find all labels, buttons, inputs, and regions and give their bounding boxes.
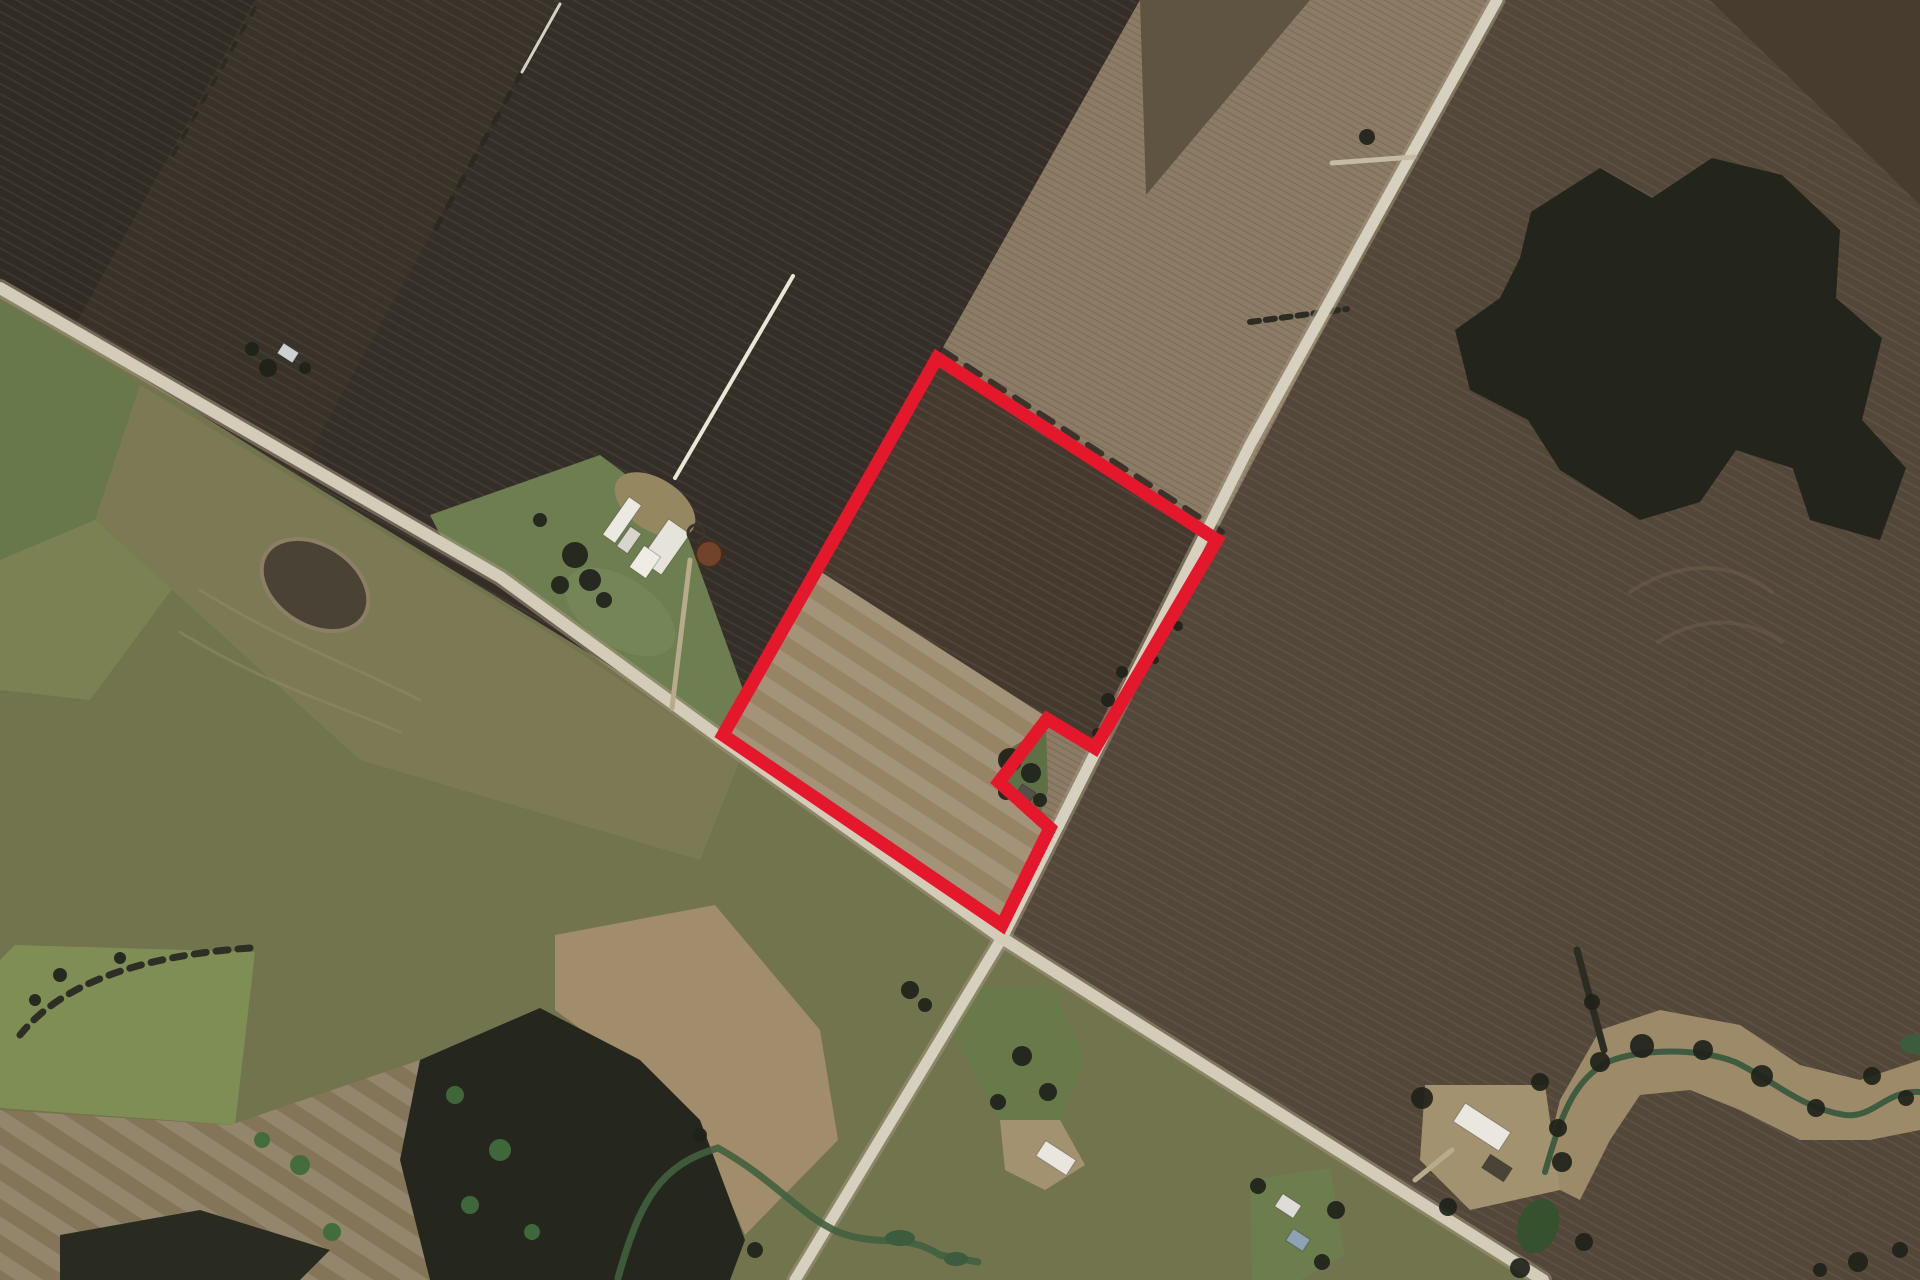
conifer-tree — [461, 1196, 479, 1214]
tree — [1575, 1233, 1593, 1251]
conifer-tree — [489, 1139, 511, 1161]
tree — [1807, 1099, 1825, 1117]
aerial-property-map — [0, 0, 1920, 1280]
tree — [579, 569, 601, 591]
tree — [1510, 1258, 1530, 1278]
tree — [1898, 1090, 1914, 1106]
conifer-tree — [323, 1223, 341, 1241]
tree — [533, 513, 547, 527]
tree — [693, 1128, 707, 1142]
tree — [1021, 763, 1041, 783]
tree — [1012, 1046, 1032, 1066]
tree — [596, 592, 612, 608]
tree — [551, 576, 569, 594]
tree — [114, 952, 126, 964]
tree — [1590, 1052, 1610, 1072]
tree — [747, 1242, 763, 1258]
tree — [990, 1094, 1006, 1110]
conifer-tree — [254, 1132, 270, 1148]
creek-pool-2 — [944, 1252, 968, 1266]
tree — [901, 981, 919, 999]
satellite-imagery — [0, 0, 1920, 1280]
conifer-tree — [524, 1224, 540, 1240]
tree — [1751, 1065, 1773, 1087]
conifer-tree — [446, 1086, 464, 1104]
tree — [1848, 1252, 1868, 1272]
tree — [1549, 1119, 1567, 1137]
tree — [1116, 666, 1128, 678]
tree — [53, 968, 67, 982]
tree — [1813, 1263, 1827, 1277]
tree — [1033, 793, 1047, 807]
tree — [1552, 1152, 1572, 1172]
pasture-bright — [0, 945, 255, 1125]
conifer-tree — [290, 1155, 310, 1175]
tree — [1039, 1083, 1057, 1101]
tree — [1584, 994, 1600, 1010]
tree — [1314, 1254, 1330, 1270]
tree — [1892, 1242, 1908, 1258]
tree — [299, 362, 311, 374]
tree — [1250, 1178, 1266, 1194]
tree — [1439, 1198, 1457, 1216]
tree — [259, 359, 277, 377]
tree — [918, 998, 932, 1012]
rust-silo — [696, 541, 722, 567]
tree — [1630, 1034, 1654, 1058]
tree — [1531, 1073, 1549, 1091]
tree — [1327, 1201, 1345, 1219]
tree — [1411, 1087, 1433, 1109]
tree — [562, 542, 588, 568]
tree — [29, 994, 41, 1006]
tree — [1863, 1067, 1881, 1085]
tree — [245, 342, 259, 356]
tree — [1693, 1040, 1713, 1060]
tree — [1359, 129, 1375, 145]
creek-pool-1 — [885, 1230, 915, 1246]
